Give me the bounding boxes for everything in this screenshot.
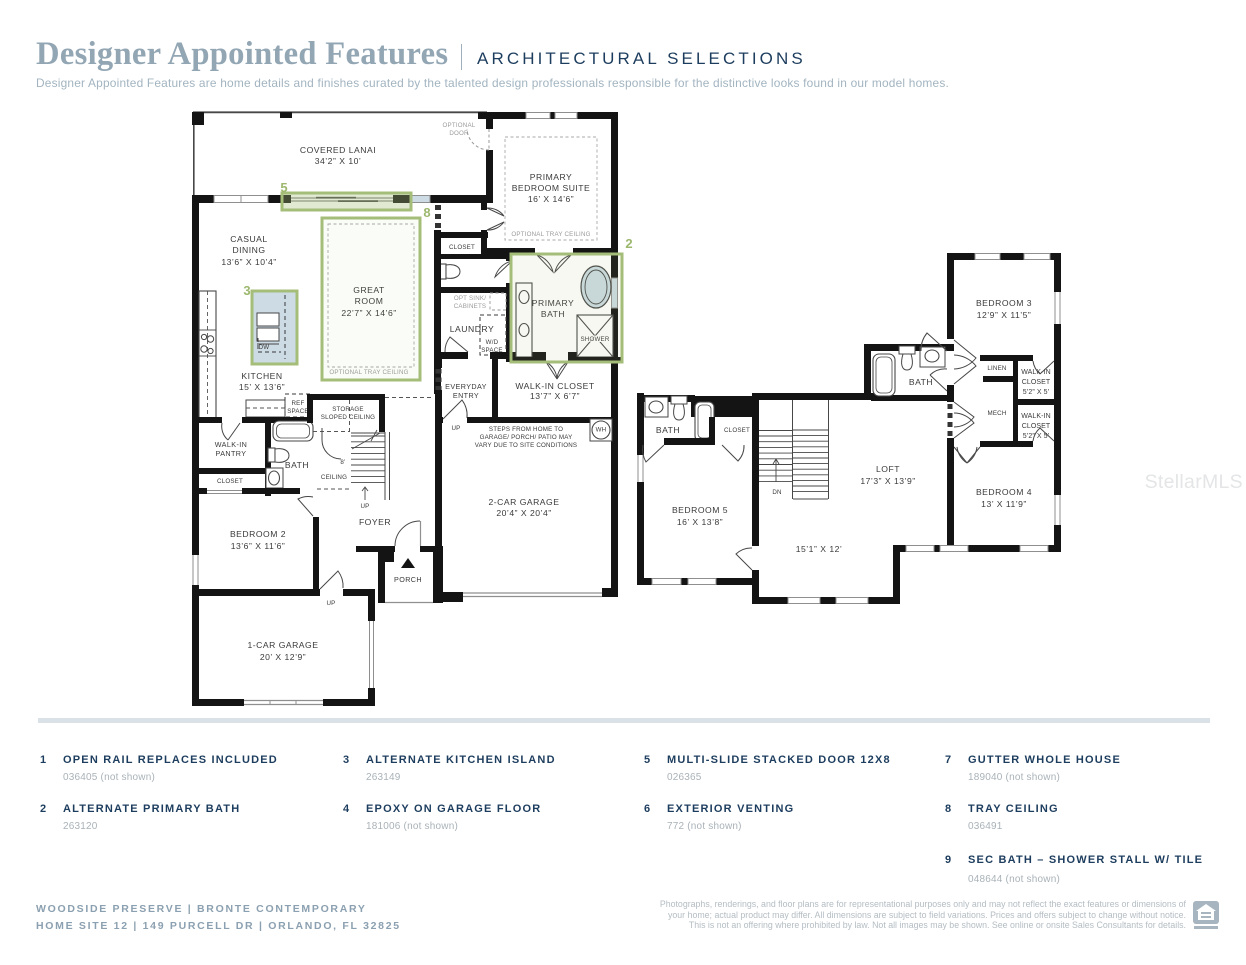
svg-text:PANTRY: PANTRY — [216, 449, 247, 458]
svg-text:20’4” X 20’4”: 20’4” X 20’4” — [496, 508, 551, 518]
svg-text:5’2” X 5’: 5’2” X 5’ — [1023, 433, 1050, 440]
svg-text:13’7” X 6’7”: 13’7” X 6’7” — [530, 391, 580, 401]
svg-text:2-CAR GARAGE: 2-CAR GARAGE — [489, 497, 560, 507]
svg-text:OPT SINK/: OPT SINK/ — [454, 295, 486, 302]
svg-text:CLOSET: CLOSET — [1022, 423, 1051, 430]
svg-text:COVERED LANAI: COVERED LANAI — [300, 145, 376, 155]
svg-text:8’: 8’ — [340, 459, 345, 466]
svg-text:12’9” X 11’5”: 12’9” X 11’5” — [977, 310, 1032, 320]
svg-text:LINEN: LINEN — [987, 365, 1006, 372]
svg-text:SPACE: SPACE — [287, 408, 309, 415]
svg-text:EVERYDAY: EVERYDAY — [445, 382, 487, 391]
svg-text:17’3” X 13’9”: 17’3” X 13’9” — [860, 476, 915, 486]
svg-text:BATH: BATH — [285, 460, 309, 470]
svg-text:PRIMARY: PRIMARY — [530, 172, 573, 182]
svg-text:34’2” X 10’: 34’2” X 10’ — [315, 156, 362, 166]
svg-text:CLOSET: CLOSET — [1022, 379, 1051, 386]
svg-text:SLOPED CEILING: SLOPED CEILING — [321, 414, 375, 421]
svg-text:UP: UP — [361, 503, 370, 510]
svg-text:KITCHEN: KITCHEN — [241, 371, 282, 381]
svg-text:DN: DN — [772, 489, 781, 496]
svg-text:DINING: DINING — [232, 245, 265, 255]
svg-text:STORAGE: STORAGE — [332, 406, 364, 413]
svg-text:BEDROOM SUITE: BEDROOM SUITE — [512, 183, 591, 193]
svg-text:2: 2 — [625, 236, 632, 251]
svg-text:15’ X 13’6”: 15’ X 13’6” — [239, 382, 285, 392]
svg-text:OPTIONAL TRAY CEILING: OPTIONAL TRAY CEILING — [511, 231, 590, 238]
svg-text:DW: DW — [259, 344, 270, 351]
svg-text:GARAGE/ PORCH/ PATIO MAY: GARAGE/ PORCH/ PATIO MAY — [480, 434, 573, 441]
svg-text:REF: REF — [292, 400, 305, 407]
svg-text:16’ X 13’8”: 16’ X 13’8” — [677, 517, 723, 527]
svg-text:13’6” X 11’6”: 13’6” X 11’6” — [231, 541, 286, 551]
svg-text:5: 5 — [280, 180, 287, 195]
svg-text:8: 8 — [423, 205, 430, 220]
svg-text:WALK-IN CLOSET: WALK-IN CLOSET — [515, 381, 595, 391]
svg-text:15’1” X 12’: 15’1” X 12’ — [796, 544, 843, 554]
svg-text:BEDROOM 5: BEDROOM 5 — [672, 505, 728, 515]
svg-text:W/D: W/D — [486, 339, 499, 346]
svg-text:CLOSET: CLOSET — [724, 427, 750, 434]
svg-text:13’ X 11’9”: 13’ X 11’9” — [981, 499, 1027, 509]
svg-text:DOOR: DOOR — [449, 130, 469, 137]
svg-text:BEDROOM 4: BEDROOM 4 — [976, 487, 1032, 497]
svg-text:LAUNDRY: LAUNDRY — [450, 324, 494, 334]
svg-text:BEDROOM 3: BEDROOM 3 — [976, 298, 1032, 308]
svg-text:16’ X 14’6”: 16’ X 14’6” — [528, 194, 574, 204]
svg-text:FOYER: FOYER — [359, 517, 391, 527]
svg-text:CLOSET: CLOSET — [217, 478, 243, 485]
svg-text:BATH: BATH — [656, 425, 680, 435]
svg-text:BATH: BATH — [909, 377, 933, 387]
svg-text:WALK-IN: WALK-IN — [1021, 413, 1051, 420]
svg-text:CABINETS: CABINETS — [454, 303, 487, 310]
svg-text:ENTRY: ENTRY — [453, 391, 479, 400]
svg-text:3: 3 — [243, 283, 250, 298]
svg-text:UP: UP — [452, 425, 461, 432]
svg-text:WH: WH — [596, 427, 607, 434]
svg-text:1-CAR GARAGE: 1-CAR GARAGE — [248, 640, 319, 650]
svg-text:STEPS FROM HOME TO: STEPS FROM HOME TO — [489, 426, 563, 433]
svg-text:OPTIONAL: OPTIONAL — [443, 122, 476, 129]
svg-text:20’ X 12’9”: 20’ X 12’9” — [260, 652, 306, 662]
svg-text:PORCH: PORCH — [394, 575, 422, 584]
svg-text:13’6” X 10’4”: 13’6” X 10’4” — [221, 257, 276, 267]
svg-text:5’2” X 5’: 5’2” X 5’ — [1023, 389, 1050, 396]
svg-text:BEDROOM 2: BEDROOM 2 — [230, 529, 286, 539]
svg-text:CEILING: CEILING — [321, 474, 347, 481]
svg-text:WALK-IN: WALK-IN — [215, 440, 247, 449]
svg-text:CLOSET: CLOSET — [449, 244, 475, 251]
svg-text:LOFT: LOFT — [876, 464, 900, 474]
svg-text:VARY DUE TO SITE CONDITIONS: VARY DUE TO SITE CONDITIONS — [475, 442, 577, 449]
svg-text:CASUAL: CASUAL — [230, 234, 267, 244]
svg-text:MECH: MECH — [987, 410, 1006, 417]
svg-text:UP: UP — [327, 600, 336, 607]
